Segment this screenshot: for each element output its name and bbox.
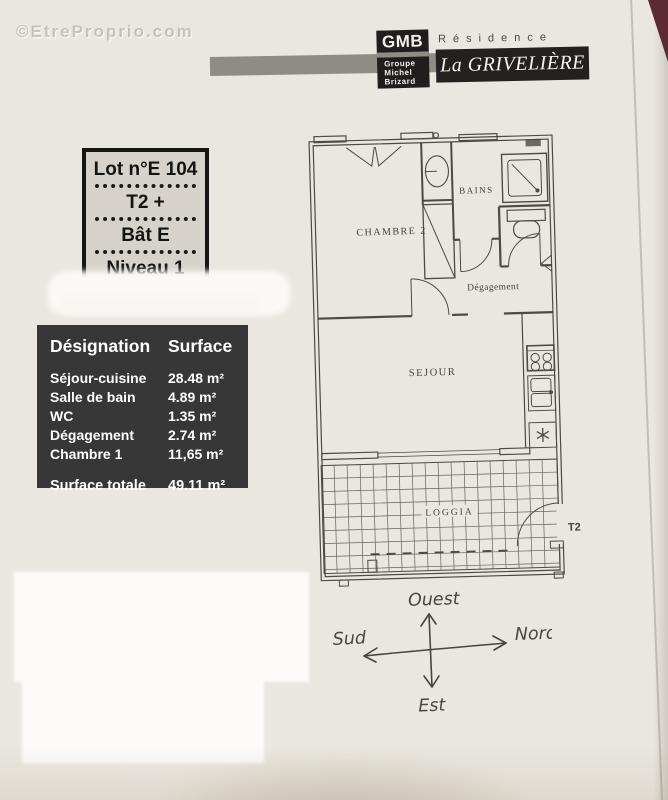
dotted-divider [95, 250, 196, 254]
lot-building: Bât E [89, 223, 202, 248]
dotted-divider [95, 184, 196, 188]
vent-icon [433, 133, 438, 138]
row-value: 1.35 m² [168, 407, 216, 426]
burner [531, 353, 540, 362]
sink-tap [550, 391, 553, 394]
row-value: 2.74 m² [168, 426, 216, 445]
table-row: Chambre 1 11,65 m² [50, 445, 240, 464]
compass-north-label: Nord [514, 624, 552, 645]
burner [531, 362, 540, 371]
row-value: 28.48 m² [168, 369, 224, 388]
watermark-text: ©EtreProprio.com [16, 22, 194, 42]
row-label: Dégagement [50, 426, 168, 445]
room-label-sejour: SEJOUR [409, 367, 457, 379]
interior-wall [322, 452, 378, 460]
compass-drawing: Ouest Sud Nord Est [322, 588, 552, 723]
scanned-floorplan-page: ©EtreProprio.com GMB Groupe Michel Briza… [0, 0, 668, 800]
sink-basin [531, 393, 551, 407]
bay-window-icon [378, 450, 500, 457]
row-label: Chambre 1 [50, 445, 168, 464]
floor-plan-drawing: CHAMBRE 2 BAINS Dégagement SEJOUR LOGGIA… [299, 116, 602, 589]
total-label: Surface totale [50, 478, 168, 494]
compass-horizontal-arrow [364, 643, 506, 656]
toilet-icon [507, 209, 545, 221]
entry-door-icon [541, 255, 551, 271]
row-value: 4.89 m² [168, 388, 216, 407]
cooktop-panel [527, 350, 554, 351]
row-value: 11,65 m² [168, 445, 223, 464]
shower-diagonal [512, 164, 537, 191]
table-row: Séjour-cuisine 28.48 m² [50, 369, 240, 388]
compass-west-label: Ouest [408, 589, 461, 611]
room-label-chambre2: CHAMBRE 2 [356, 226, 427, 239]
table-row: Salle de bain 4.89 m² [50, 388, 240, 407]
lot-type: T2 + [89, 190, 202, 215]
compass-rose: Ouest Sud Nord Est [322, 588, 552, 723]
interior-wall [454, 239, 500, 240]
asterisk-icon [537, 428, 549, 442]
surface-table: Désignation Surface Séjour-cuisine 28.48… [37, 325, 248, 488]
room-label-bains: BAINS [459, 185, 494, 196]
door-arc-icon [411, 278, 449, 316]
kitchen-counter [522, 314, 526, 448]
window-sill-icon [401, 132, 433, 139]
floor-plan: CHAMBRE 2 BAINS Dégagement SEJOUR LOGGIA… [299, 116, 602, 589]
unit-label-t2: T2 [568, 521, 581, 533]
door-arc-icon [460, 239, 493, 272]
interior-wall [318, 312, 553, 319]
table-row: WC 1.35 m² [50, 407, 240, 426]
wardrobe-diagonal [423, 204, 455, 279]
table-row: Dégagement 2.74 m² [50, 426, 240, 445]
wall-foot [339, 580, 348, 586]
lot-info-box: Lot n°E 104 T2 + Bât E Niveau 1 [82, 148, 209, 291]
dotted-divider [95, 217, 196, 221]
wall-opening [556, 504, 565, 544]
sink-basin [531, 378, 551, 392]
compass-south-label: Sud [332, 628, 367, 650]
meter-box-icon [526, 139, 540, 145]
residence-name-banner: La GRIVELIÈRE [436, 46, 590, 82]
room-label-degagement: Dégagement [467, 282, 519, 293]
room-label-loggia: LOGGIA [425, 507, 474, 518]
window-casement-icon [346, 146, 402, 167]
gmb-logo-lines: Groupe Michel Brizard [377, 58, 430, 86]
photo-shadow [115, 750, 575, 800]
column-designation: Désignation [50, 336, 168, 357]
wall-foot [554, 572, 563, 578]
surface-table-header: Désignation Surface [50, 336, 240, 357]
paper-edge-shadow [653, 0, 668, 800]
gmb-logo: GMB Groupe Michel Brizard [376, 29, 430, 88]
gmb-logo-line: Brizard [384, 76, 429, 86]
lot-number: Lot n°E 104 [89, 157, 202, 182]
burner [543, 353, 552, 362]
toilet-bowl [513, 220, 539, 238]
burner [543, 362, 552, 371]
compass-east-label: Est [418, 695, 447, 716]
gmb-logo-acronym: GMB [376, 31, 428, 51]
redaction-block [16, 574, 307, 680]
row-label: Salle de bain [50, 388, 168, 407]
gmb-logo-stripe [377, 51, 429, 57]
column-surface: Surface [168, 336, 232, 357]
table-total-row: Surface totale 49.11 m² [50, 478, 240, 494]
row-label: WC [50, 407, 168, 426]
interior-wall [500, 448, 530, 455]
row-label: Séjour-cuisine [50, 369, 168, 388]
whiteout-smudge [60, 296, 260, 314]
total-value: 49.11 m² [168, 478, 225, 494]
residence-label: Résidence [438, 31, 590, 46]
shower-drain [536, 189, 539, 192]
